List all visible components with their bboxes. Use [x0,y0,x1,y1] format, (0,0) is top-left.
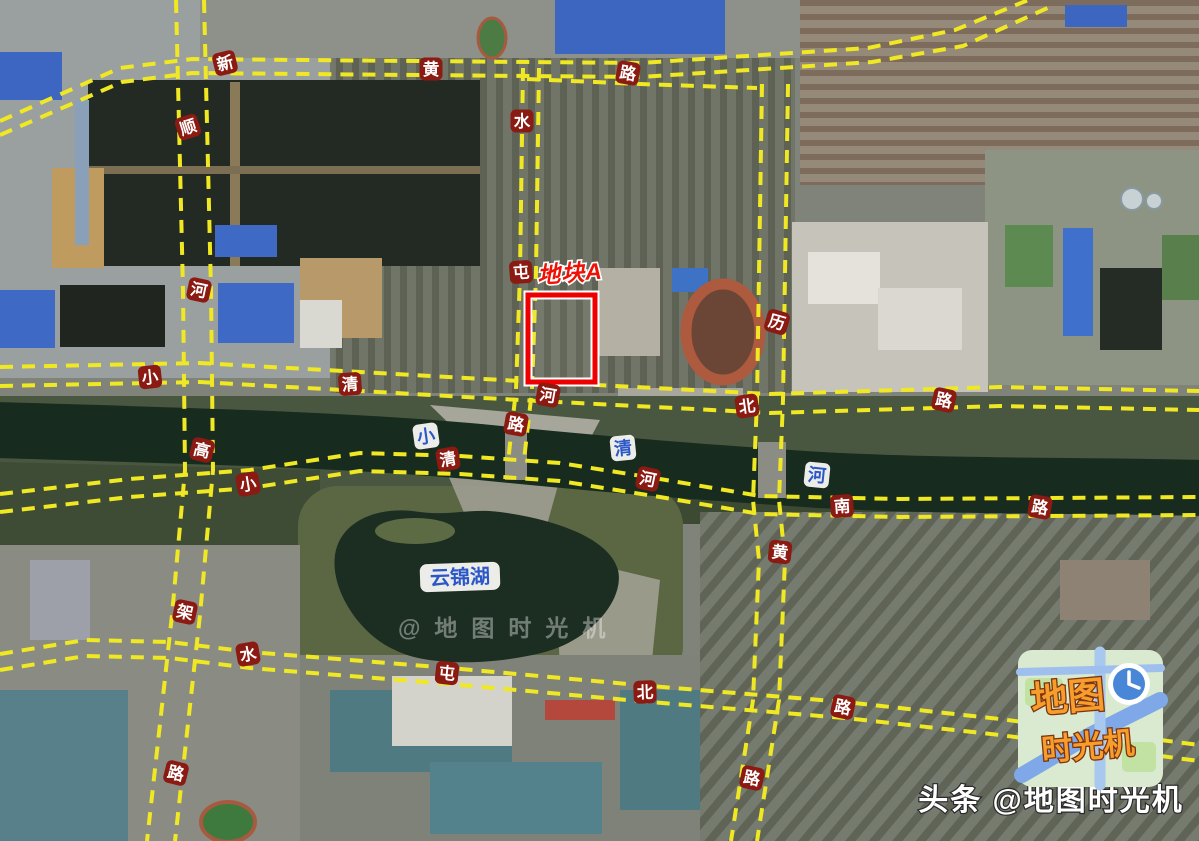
road-label-历黄路: 黄 [767,539,792,564]
plot-a-highlight [528,295,595,382]
satellite-map: 地块A 新黄路顺河高架路水屯路小清河北路小清河南路历黄路水屯北路 小清河 云锦湖… [0,0,1199,841]
river-label-小清河: 清 [609,434,636,461]
road-label-水屯路: 屯 [509,260,534,285]
road-label-小清河南路: 河 [634,465,661,492]
plot-a-label: 地块A [536,258,603,289]
road-label-顺河高架路: 河 [185,276,212,303]
svg-text:南: 南 [833,495,851,516]
river-label-小清河: 河 [803,461,830,488]
road-label-小清河北路: 北 [734,393,760,419]
road-label-水屯北路: 北 [633,680,657,704]
lake-label: 云锦湖 [420,562,501,593]
road-label-水屯北路: 屯 [434,660,459,685]
river-label-小清河: 小 [412,422,440,450]
road-label-水屯北路: 水 [235,641,262,668]
clock-icon [1108,663,1150,705]
satellite-map-post: 地块A 新黄路顺河高架路水屯路小清河北路小清河南路历黄路水屯北路 小清河 云锦湖… [0,0,1199,841]
svg-text:清: 清 [613,438,633,460]
road-label-历黄路: 路 [738,764,765,791]
road-label-水屯路: 路 [503,411,530,438]
svg-text:屯: 屯 [512,261,530,282]
road-label-小清河北路: 清 [338,372,363,397]
road-label-新黄路: 黄 [420,58,443,81]
road-label-小清河南路: 南 [830,494,855,519]
watermark-bottom: 头条 @地图时光机 [918,784,1184,817]
svg-text:北: 北 [738,396,757,417]
road-label-顺河高架路: 架 [171,598,198,625]
svg-text:黄: 黄 [771,541,790,563]
road-label-小清河南路: 路 [1027,494,1054,521]
road-label-水屯北路: 路 [829,693,856,720]
road-label-小清河南路: 小 [235,471,262,498]
watermark-center: @地图时光机 [398,615,619,641]
road-label-新黄路: 路 [615,60,642,87]
svg-text:屯: 屯 [438,662,457,684]
logo-map-time-machine: 地图 时光机 [1018,650,1163,787]
svg-text:小: 小 [416,425,437,447]
svg-text:水: 水 [514,111,531,131]
svg-text:北: 北 [636,683,654,703]
logo-line1: 地图 [1029,674,1106,721]
road-label-小清河南路: 清 [435,446,462,473]
road-label-水屯路: 水 [511,110,534,133]
svg-text:黄: 黄 [423,59,440,79]
road-label-小清河北路: 河 [535,382,562,409]
svg-text:小: 小 [141,367,160,388]
svg-text:清: 清 [341,374,359,394]
road-label-小清河北路: 小 [137,364,162,389]
svg-text:云锦湖: 云锦湖 [430,564,491,590]
svg-text:河: 河 [807,465,827,487]
svg-text:清: 清 [438,449,458,471]
road-label-小清河北路: 路 [930,386,957,413]
